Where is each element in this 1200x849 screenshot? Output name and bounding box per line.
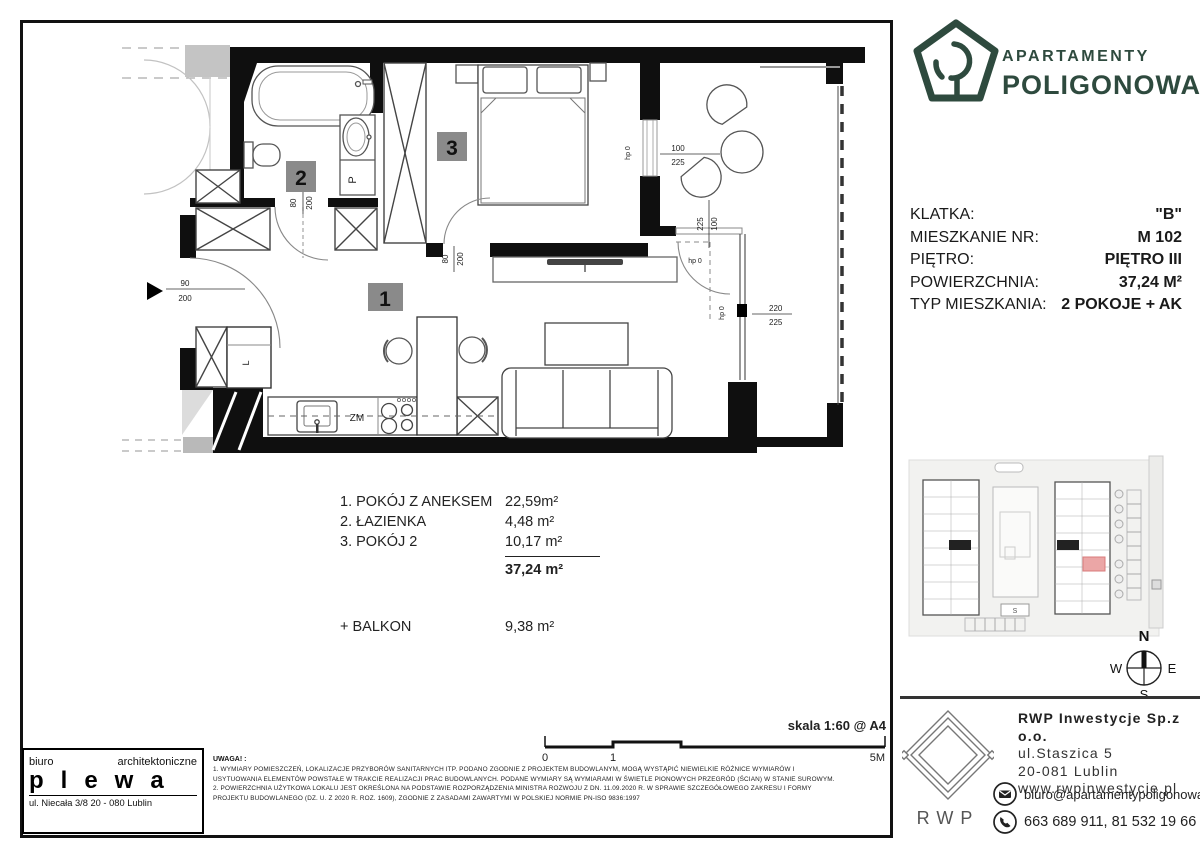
room-name: 1. POKÓJ Z ANEKSEM (340, 492, 505, 512)
phone-icon (992, 809, 1018, 835)
balcony-label: + BALKON (340, 617, 505, 637)
svg-text:100: 100 (710, 217, 719, 231)
rwp-logo-text: RWP (917, 808, 980, 828)
svg-text:200: 200 (305, 196, 314, 210)
total-rule (505, 556, 600, 557)
developer-city: 20-081 Lublin (1018, 763, 1200, 781)
note-line: USYTUOWANIA ELEMENTÓW POWSTAŁE W TRAKCIE… (213, 775, 889, 785)
developer-email[interactable]: biuro@apartamentypoligonowa.pl (1024, 787, 1200, 802)
detail-row: KLATKA: "B" (910, 204, 1182, 227)
room-row: 2. ŁAZIENKA 4,48 m² (340, 512, 602, 532)
svg-text:220: 220 (769, 304, 783, 313)
compass-e: E (1168, 661, 1177, 676)
detail-label: PIĘTRO: (910, 249, 974, 272)
detail-row: MIESZKANIE NR: M 102 (910, 227, 1182, 250)
note-line: 1. WYMIARY POMIESZCZEŃ, LOKALIZACJE PRZY… (213, 765, 889, 775)
bedroom-furniture (456, 63, 606, 205)
svg-text:200: 200 (178, 294, 192, 303)
svg-text:100: 100 (671, 144, 685, 153)
badge-room1: 1 (379, 288, 391, 311)
badge-room3: 3 (446, 137, 458, 160)
compass: N W E S (1108, 628, 1188, 702)
developer-divider (900, 696, 1200, 699)
detail-value: PIĘTRO III (1105, 249, 1182, 272)
balcony-chair (699, 77, 751, 127)
nightstand (456, 65, 478, 83)
svg-text:hp 0: hp 0 (719, 306, 726, 320)
total-area: 37,24 m² (505, 560, 563, 580)
fridge-label: L (241, 360, 251, 365)
room-row: 1. POKÓJ Z ANEKSEM 22,59m² (340, 492, 602, 512)
balcony-furniture (677, 77, 763, 205)
room-area: 10,17 m² (505, 532, 562, 552)
svg-text:80: 80 (289, 198, 298, 207)
notes-title: UWAGA! : (213, 756, 889, 763)
badge-room2: 2 (295, 167, 307, 190)
site-building-b (1055, 482, 1110, 614)
detail-label: KLATKA: (910, 204, 975, 227)
architect-box: biuro architektoniczne plewa ul. Niecała… (22, 748, 204, 834)
svg-text:225: 225 (769, 318, 783, 327)
svg-text:200: 200 (456, 252, 465, 266)
architect-kind: biuro architektoniczne (29, 756, 197, 768)
detail-label: POWIERZCHNIA: (910, 272, 1039, 295)
site-highlighted-unit (1083, 557, 1105, 571)
notes-block: UWAGA! : 1. WYMIARY POMIESZCZEŃ, LOKALIZ… (213, 756, 889, 803)
site-building-a (923, 480, 979, 615)
pentagon-icon (917, 23, 995, 98)
apartment-details: KLATKA: "B" MIESZKANIE NR: M 102 PIĘTRO:… (910, 204, 1182, 317)
compass-w: W (1110, 661, 1123, 676)
toilet (253, 144, 280, 166)
developer-logo: RWP (902, 702, 994, 830)
detail-label: TYP MIESZKANIA: (910, 294, 1047, 317)
brand-line2: POLIGONOWA (1002, 70, 1200, 101)
developer-phones[interactable]: 663 689 911, 81 532 19 66 (1024, 814, 1196, 830)
entry-shade (182, 390, 213, 435)
room-name: 2. ŁAZIENKA (340, 512, 505, 532)
note-line: PROJEKTU BUDOWLANEGO (DZ. U. Z 2020 R. R… (213, 794, 889, 804)
site-marker-s: S (1013, 608, 1018, 615)
room-area: 4,48 m² (505, 512, 554, 532)
room-list: 1. POKÓJ Z ANEKSEM 22,59m² 2. ŁAZIENKA 4… (340, 492, 602, 580)
room-area: 22,59m² (505, 492, 558, 512)
total-row: 37,24 m² (340, 560, 602, 580)
balcony-table (721, 131, 763, 173)
entry-arrow (147, 282, 163, 300)
architect-address: ul. Niecała 3/8 20 - 080 Lublin (29, 795, 197, 808)
fridge-cabinet (227, 327, 271, 388)
kitchen-island (417, 317, 457, 435)
email-icon (992, 781, 1018, 807)
balcony-row: + BALKON 9,38 m² (340, 617, 602, 637)
site-plan: S (905, 452, 1197, 644)
washer-label: P (347, 176, 359, 183)
svg-text:80: 80 (441, 254, 450, 263)
svg-text:hp 0: hp 0 (625, 146, 632, 160)
floor-plan-drawing: P L ZM (120, 20, 895, 470)
room-name: 3. POKÓJ 2 (340, 532, 505, 552)
coffee-table (545, 323, 628, 365)
svg-text:90: 90 (181, 279, 190, 288)
detail-label: MIESZKANIE NR: (910, 227, 1039, 250)
nightstand (590, 63, 606, 81)
developer-company: RWP Inwestycje Sp.z o.o. (1018, 710, 1200, 745)
floor-plan-sheet: P L ZM (0, 0, 1200, 849)
detail-row: PIĘTRO: PIĘTRO III (910, 249, 1182, 272)
balcony-chair (677, 154, 729, 205)
balcony-area: 9,38 m² (505, 617, 554, 637)
compass-n: N (1139, 628, 1150, 645)
detail-value: 37,24 M² (1119, 272, 1182, 295)
architect-name: plewa (29, 768, 197, 794)
site-courtyard: S (993, 487, 1038, 616)
tv (547, 259, 623, 265)
svg-text:225: 225 (671, 158, 685, 167)
brand-line1: APARTAMENTY (1002, 48, 1150, 66)
detail-value: "B" (1155, 204, 1182, 227)
scale-label: skala 1:60 @ A4 (788, 718, 887, 733)
dishwasher-label: ZM (350, 413, 364, 424)
room-row: 3. POKÓJ 2 10,17 m² (340, 532, 602, 552)
developer-street: ul.Staszica 5 (1018, 745, 1200, 763)
detail-value: 2 POKOJE + AK (1061, 294, 1182, 317)
pillow (537, 67, 581, 93)
living-furniture (493, 257, 677, 438)
svg-text:hp 0: hp 0 (688, 258, 702, 265)
brand-logo (910, 16, 1002, 108)
compass-s: S (1140, 687, 1149, 702)
rwp-diamonds-icon (902, 711, 994, 799)
detail-row: POWIERZCHNIA: 37,24 M² (910, 272, 1182, 295)
toilet-tank (244, 142, 253, 168)
pillow (483, 67, 527, 93)
outside-wall-shade (185, 45, 230, 77)
detail-value: M 102 (1138, 227, 1182, 250)
developer-info: RWP Inwestycje Sp.z o.o. ul.Staszica 5 2… (1018, 710, 1200, 798)
gray-wall-block (183, 437, 213, 453)
svg-text:225: 225 (696, 217, 705, 231)
detail-row: TYP MIESZKANIA: 2 POKOJE + AK (910, 294, 1182, 317)
note-line: 2. POWIERZCHNIA UŻYTKOWA LOKALU JEST OKR… (213, 784, 889, 794)
